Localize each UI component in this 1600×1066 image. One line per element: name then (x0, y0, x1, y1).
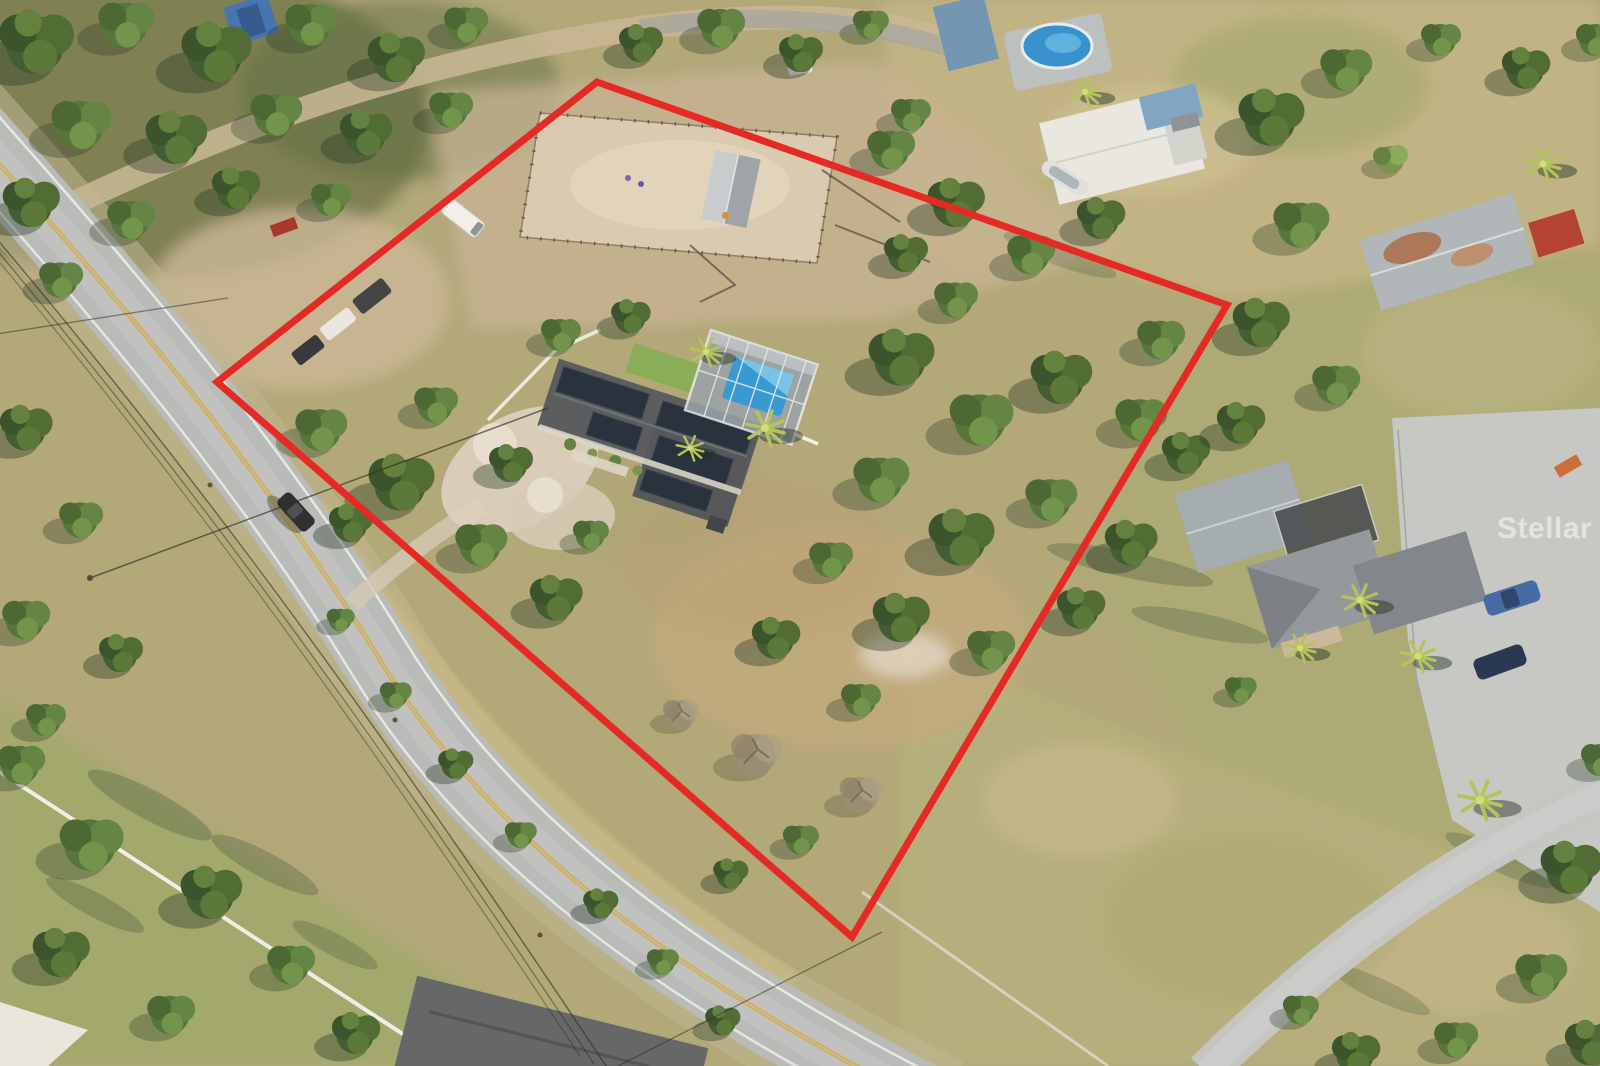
aerial-photo-canvas (0, 0, 1600, 1066)
aerial-photo: Stellar MLS (0, 0, 1600, 1066)
mls-watermark: Stellar MLS (1497, 512, 1600, 546)
sunlight-tint (0, 0, 1600, 1066)
